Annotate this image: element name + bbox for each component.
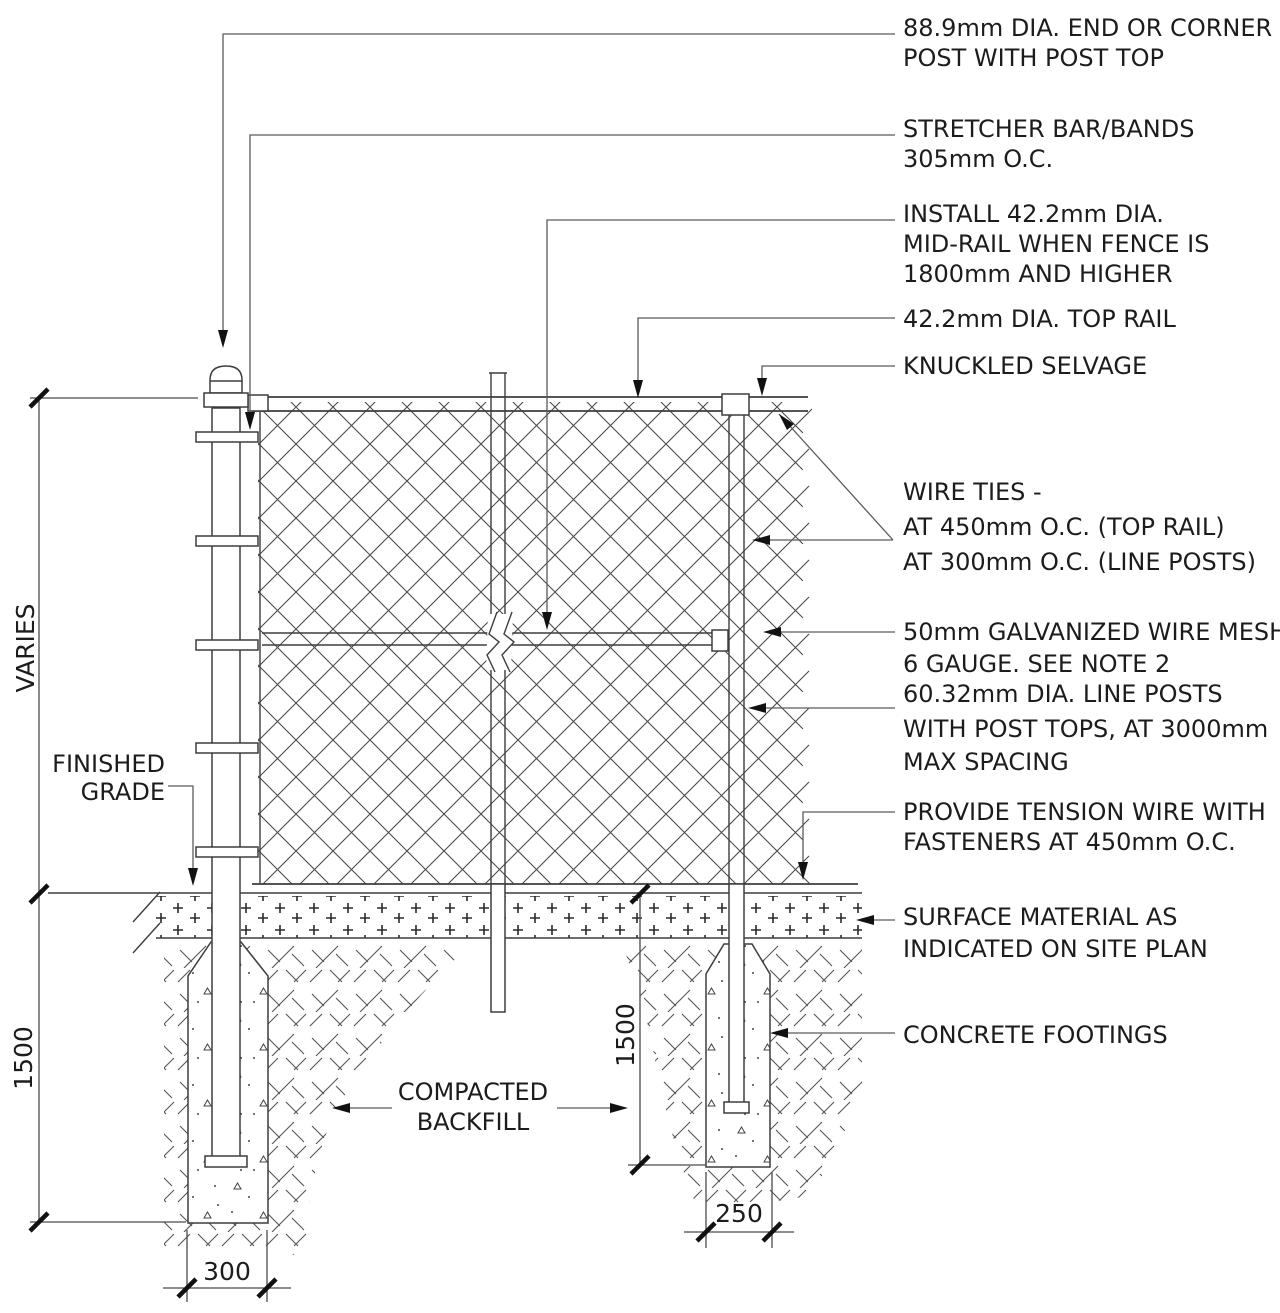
label-concrete-footings: CONCRETE FOOTINGS [903, 1021, 1168, 1049]
label-knuckled-selvage: KNUCKLED SELVAGE [903, 352, 1147, 380]
end-post-bottom-plate [205, 1156, 247, 1167]
end-post-body [212, 408, 240, 1158]
arrow-down-icon [757, 378, 767, 396]
post-cap-collar [204, 393, 248, 407]
wire-mesh-area [258, 402, 818, 884]
label-finished-grade: FINISHED [52, 750, 165, 778]
label-compacted-backfill: BACKFILL [417, 1108, 530, 1136]
label-line-posts: WITH POST TOPS, AT 3000mm [903, 715, 1268, 743]
chain-link-mesh [258, 402, 818, 884]
stretcher-band [196, 847, 258, 857]
label-wire-ties: AT 450mm O.C. (TOP RAIL) [903, 513, 1225, 541]
arrow-down-icon [245, 412, 255, 430]
label-mid-rail: 1800mm AND HIGHER [903, 260, 1173, 288]
label-line-posts: MAX SPACING [903, 748, 1069, 776]
label-stretcher: STRETCHER BAR/BANDS [903, 115, 1194, 143]
label-line-posts: 60.32mm DIA. LINE POSTS [903, 680, 1223, 708]
dim-right-width: 250 [715, 1199, 763, 1228]
label-mid-rail: MID-RAIL WHEN FENCE IS [903, 230, 1209, 258]
label-wire-mesh: 50mm GALVANIZED WIRE MESH [903, 618, 1280, 646]
center-post-buried [491, 884, 505, 1012]
label-wire-ties: WIRE TIES - [903, 478, 1042, 506]
drawing-canvas: VARIES 1500 300 1500 250 [0, 0, 1280, 1308]
dim-varies: VARIES [11, 603, 40, 692]
label-end-post: 88.9mm DIA. END OR CORNER [903, 14, 1272, 42]
arrow-right-icon [610, 1103, 628, 1113]
dim-right-depth: 1500 [611, 1003, 640, 1067]
label-wire-ties: AT 300mm O.C. (LINE POSTS) [903, 548, 1256, 576]
arrow-down-icon [633, 380, 643, 398]
fence-detail-drawing: VARIES 1500 300 1500 250 [0, 0, 1280, 1308]
leader-end-post [223, 34, 895, 340]
right-post-buried [729, 884, 744, 1104]
stretcher-band [196, 743, 258, 753]
post-top-cap [210, 366, 242, 393]
label-mid-rail: INSTALL 42.2mm DIA. [903, 200, 1164, 228]
right-post-bottom-plate [724, 1102, 749, 1113]
label-compacted-backfill: COMPACTED [398, 1078, 548, 1106]
leader-finished-grade [168, 786, 193, 868]
rail-end-cap [248, 395, 268, 411]
arrow-down-icon [188, 868, 198, 886]
label-tension-wire: PROVIDE TENSION WIRE WITH [903, 798, 1266, 826]
mid-rail-bracket [712, 630, 728, 651]
leader-knuckled-selvage [762, 366, 895, 388]
stretcher-band [196, 536, 258, 546]
label-finished-grade: GRADE [81, 778, 165, 806]
arrow-down-icon [218, 330, 228, 348]
label-surface-material: SURFACE MATERIAL AS [903, 903, 1178, 931]
dim-left-width: 300 [203, 1257, 251, 1286]
rail-sleeve [722, 394, 749, 415]
label-stretcher: 305mm O.C. [903, 145, 1053, 173]
label-top-rail: 42.2mm DIA. TOP RAIL [903, 305, 1176, 333]
label-wire-mesh: 6 GAUGE. SEE NOTE 2 [903, 650, 1170, 678]
dim-left-depth: 1500 [9, 1026, 38, 1090]
surface-material-layer [150, 896, 862, 938]
leader-stretcher [250, 135, 895, 420]
label-tension-wire: FASTENERS AT 450mm O.C. [903, 828, 1236, 856]
stretcher-band [196, 432, 258, 442]
label-surface-material: INDICATED ON SITE PLAN [903, 935, 1208, 963]
stretcher-band [196, 640, 258, 650]
label-end-post: POST WITH POST TOP [903, 44, 1164, 72]
